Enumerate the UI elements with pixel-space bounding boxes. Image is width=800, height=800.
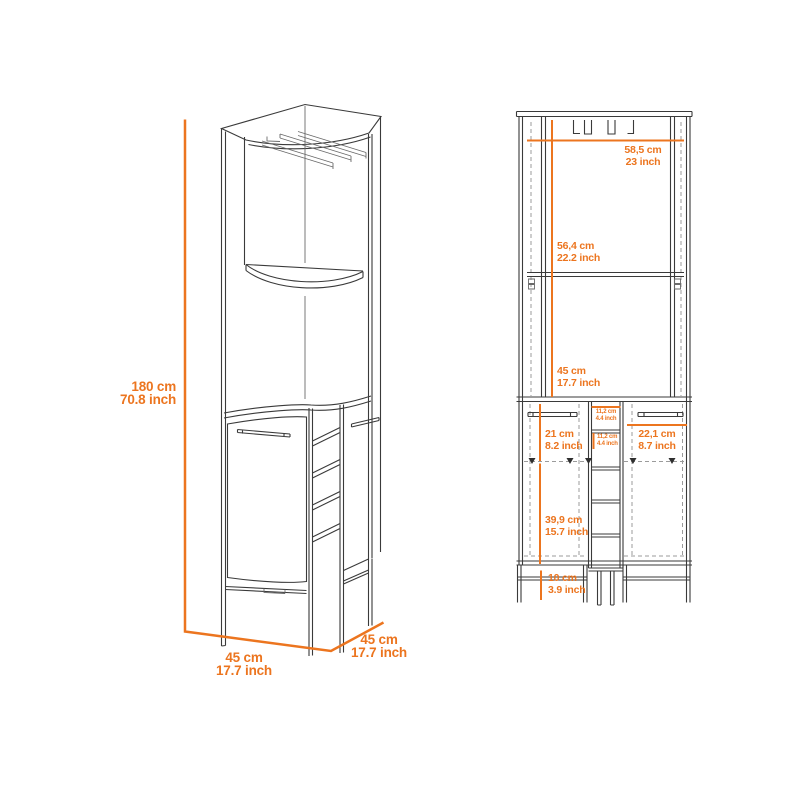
dim-height-inch: 70.8 inch [76, 393, 176, 406]
dim-cubby-width-label: 11,2 cm 4.4 inch [583, 409, 629, 423]
dim-width-inch: 17.7 inch [329, 646, 429, 659]
dim-left-door-inch: 8.2 inch [545, 441, 583, 453]
dim-left-door-label: 21 cm 8.2 inch [545, 429, 583, 452]
dim-upper-section-label: 56,4 cm 22.2 inch [557, 241, 600, 264]
dim-depth-label: 45 cm 17.7 inch [194, 651, 294, 677]
perspective-view [185, 105, 384, 657]
dim-top-width-inch: 23 inch [593, 157, 693, 169]
dim-leg-height-cm: 10 cm [548, 573, 586, 585]
dim-upper-section-inch: 22.2 inch [557, 253, 600, 265]
front-view [517, 112, 693, 606]
dim-lower-section-cm: 39,9 cm [545, 515, 588, 527]
dim-depth-inch: 17.7 inch [194, 664, 294, 677]
dim-left-door-cm: 21 cm [545, 429, 583, 441]
dim-lower-section-label: 39,9 cm 15.7 inch [545, 515, 588, 538]
dim-top-width-label: 58,5 cm 23 inch [593, 145, 693, 168]
dim-leg-height-inch: 3.9 inch [548, 585, 586, 597]
dim-top-width-cm: 58,5 cm [593, 145, 693, 157]
dim-cubby-width-cm: 11,2 cm [583, 409, 629, 416]
dim-middle-section-inch: 17.7 inch [557, 378, 600, 390]
dim-cubby-width-inch: 4.4 inch [583, 416, 629, 423]
cabinet-dimension-diagram: 180 cm 70.8 inch 45 cm 17.7 inch 45 cm 1… [0, 0, 800, 800]
dim-right-door-cm: 22,1 cm [608, 429, 706, 441]
dim-middle-section-cm: 45 cm [557, 366, 600, 378]
dim-lower-section-inch: 15.7 inch [545, 527, 588, 539]
dim-right-door-inch: 8.7 inch [608, 441, 706, 453]
dim-leg-height-label: 10 cm 3.9 inch [548, 573, 586, 596]
dim-upper-section-cm: 56,4 cm [557, 241, 600, 253]
dim-right-door-label: 22,1 cm 8.7 inch [608, 429, 706, 452]
dim-width-label: 45 cm 17.7 inch [329, 633, 429, 659]
dim-height-label: 180 cm 70.8 inch [76, 380, 176, 406]
dim-middle-section-label: 45 cm 17.7 inch [557, 366, 600, 389]
